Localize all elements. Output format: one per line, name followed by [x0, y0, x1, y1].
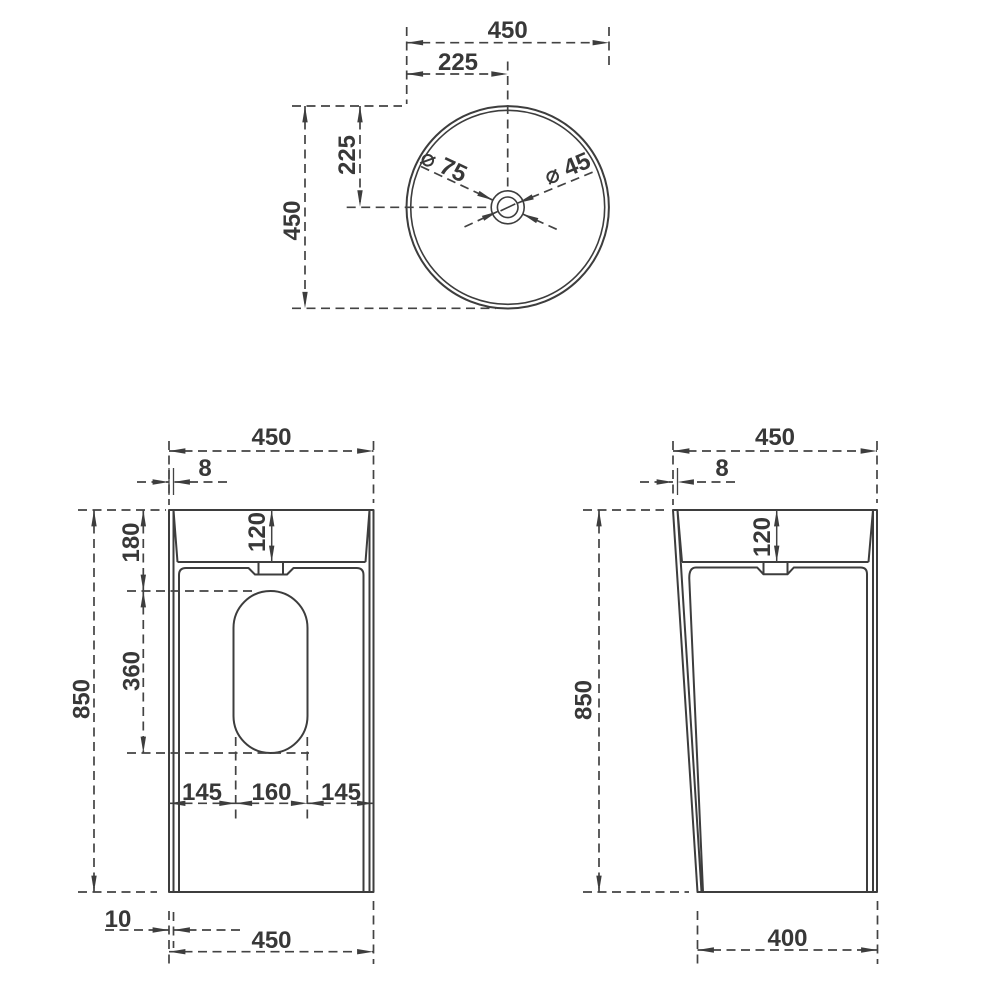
drawing-svg: 450 225 225 450 ⌀ 75 ⌀ 45 450 8 120 180 … [0, 0, 1000, 1000]
front-view-cutout-oval [234, 591, 308, 753]
dim-label-front-basin-depth: 120 [244, 512, 271, 552]
dim-label-side-rim-thickness: 8 [715, 455, 728, 482]
dim-label-front-overall-height: 850 [69, 679, 96, 719]
leader-d75-lower [522, 214, 556, 229]
dim-label-front-overall-width: 450 [251, 424, 291, 451]
dim-label-front-base-width: 450 [251, 927, 291, 954]
dim-label-front-cutout-offset-right: 145 [321, 779, 361, 806]
front-view-extension-lines [78, 441, 374, 964]
dim-label-front-cutout-width: 160 [251, 779, 291, 806]
dim-label-top-center-offset-h: 225 [438, 49, 478, 76]
side-view-body-outline [673, 510, 877, 892]
dim-label-top-center-offset-v: 225 [334, 135, 361, 175]
top-view: 450 225 225 450 ⌀ 75 ⌀ 45 [279, 17, 609, 309]
front-view: 450 8 120 180 360 850 145 160 145 10 450 [69, 424, 374, 964]
dim-label-front-cutout-height: 360 [119, 651, 146, 691]
leader-d45-lower [465, 211, 498, 227]
front-view-body-outline [169, 510, 374, 892]
dim-label-side-overall-height: 850 [571, 680, 598, 720]
dim-label-side-base-depth: 400 [767, 925, 807, 952]
dim-label-front-base-inset: 10 [105, 906, 132, 933]
dim-label-front-rim-thickness: 8 [198, 455, 211, 482]
dim-label-top-overall-depth: 450 [279, 200, 306, 240]
basin-technical-drawing: 450 225 225 450 ⌀ 75 ⌀ 45 450 8 120 180 … [0, 0, 1000, 1000]
drain-center-mark [501, 204, 516, 211]
side-view: 450 8 120 850 400 [571, 424, 878, 964]
dim-label-front-cutout-offset-left: 145 [182, 779, 222, 806]
dim-label-side-basin-depth: 120 [749, 517, 776, 557]
dim-label-front-rim-to-cutout: 180 [118, 522, 145, 562]
dim-label-side-overall-width: 450 [755, 424, 795, 451]
dim-label-drain-inner-dia: ⌀ 45 [540, 147, 595, 191]
dim-label-top-overall-width: 450 [488, 17, 528, 44]
side-view-extension-lines [583, 441, 878, 964]
dim-label-drain-outer-dia: ⌀ 75 [416, 144, 471, 189]
